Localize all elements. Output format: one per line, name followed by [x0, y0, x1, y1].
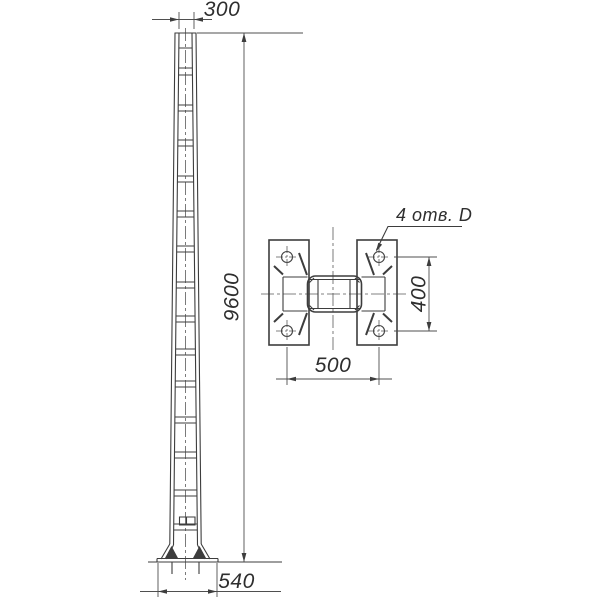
holes-callout: 4 отв. D: [376, 205, 473, 252]
anchor-plate-left: [269, 240, 309, 345]
dimension-arrow: [370, 377, 379, 382]
dimension-height: 9600: [197, 33, 303, 562]
pole-technical-drawing: 300 9600 540 4 отв. D: [0, 0, 600, 600]
holes-callout-label: 4 отв. D: [396, 205, 472, 225]
dimension-arrow: [242, 553, 247, 562]
dimension-arrow: [194, 17, 203, 22]
dimension-bolt-span-horizontal: 500: [276, 347, 392, 385]
dimension-label-bolt-span-horizontal: 500: [315, 354, 352, 377]
dimension-label-bolt-span-vertical: 400: [408, 276, 431, 313]
dimension-label-base-width: 540: [218, 570, 255, 593]
anchor-plate-right: [357, 240, 397, 345]
dimension-label-height: 9600: [221, 273, 244, 322]
dimension-arrow: [427, 322, 432, 331]
drawing-sheet: 300 9600 540 4 отв. D: [0, 0, 600, 600]
dimension-arrow: [427, 257, 432, 266]
dimension-label-top-width: 300: [204, 0, 241, 21]
pole-front-view: [148, 28, 282, 580]
base-gusset: [193, 546, 200, 559]
dimension-arrow: [287, 377, 296, 382]
dimension-arrow: [242, 33, 247, 42]
pole-base: [148, 544, 282, 574]
dimension-top-width: 300: [152, 0, 240, 29]
dimension-arrow: [170, 17, 179, 22]
dimension-arrow: [158, 589, 167, 594]
base-plate-plan-view: 4 отв. D 400 500: [261, 205, 472, 385]
dimension-lines: [197, 33, 303, 562]
base-gusset: [172, 546, 179, 559]
dimension-arrow: [208, 589, 217, 594]
dimension-base-width: 540: [140, 563, 281, 597]
leader-line: [377, 227, 463, 251]
